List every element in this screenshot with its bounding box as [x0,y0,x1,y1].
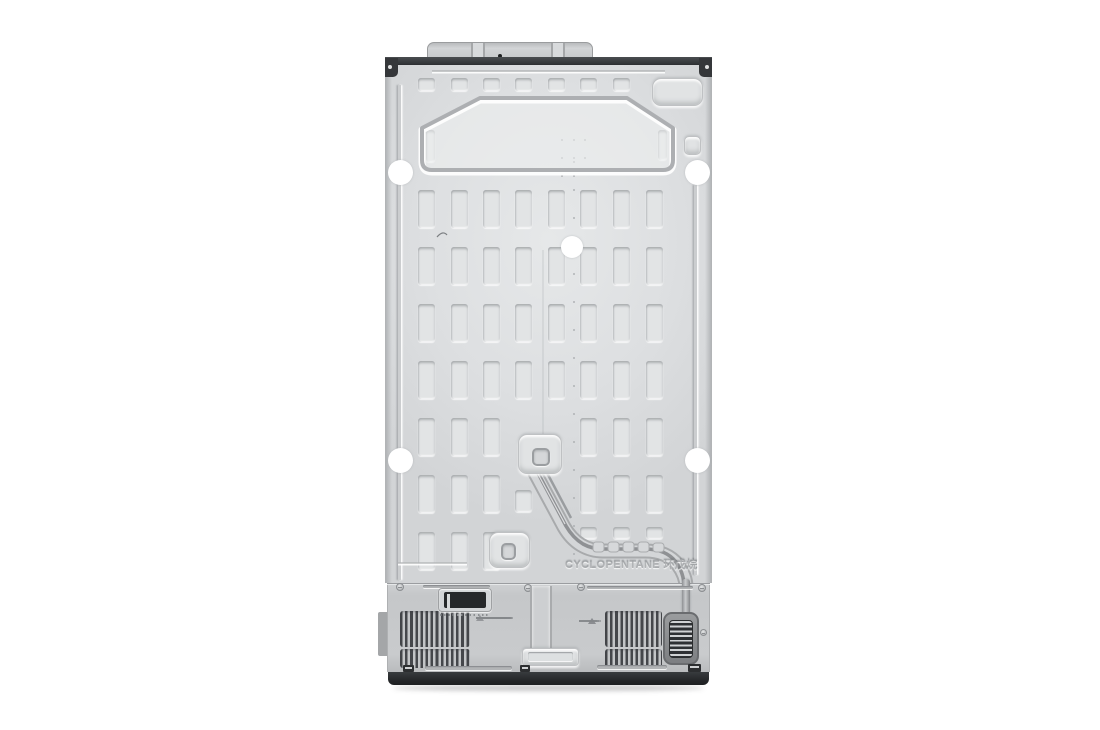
top-left-corner-bracket [385,58,398,77]
refrigerator-back: CYCLOPENTANE 环戊烷 [385,35,712,695]
cover-screw [396,583,404,591]
fine-print-line [476,617,501,619]
mount-hole [388,160,413,185]
base-strip [388,672,709,685]
right-warning-label [579,618,605,646]
cover-top-slot-right [587,586,693,589]
right-vent-grille-upper [605,611,662,647]
bracket-screw-dot [388,65,392,69]
foot-plate-slot [528,652,573,661]
ground-screw [577,583,585,591]
bottom-slot-left [425,666,512,670]
base-clip [520,665,530,672]
mount-hole [685,448,710,473]
fan-outlet-louvers [669,620,693,658]
base-clip [688,664,701,672]
cyclopentane-emboss-text: CYCLOPENTANE 环戊烷 [565,556,697,572]
base-clip [403,665,414,672]
top-right-corner-bracket [699,58,712,77]
photo-canvas: CYCLOPENTANE 环戊烷 [0,0,1100,730]
cover-seam [387,583,710,584]
mount-hole [685,160,710,185]
barcode-bar [447,594,450,610]
barcode-window [444,592,486,608]
bracket-screw-dot [705,65,709,69]
fine-print-line [579,620,597,622]
bottom-slot-right [597,665,667,669]
mount-hole [388,448,413,473]
left-warning-label [476,615,516,665]
cover-screw [698,584,706,592]
cover-screw [700,629,707,636]
left-vent-grille-upper [400,611,470,647]
mount-hole [561,236,583,258]
center-conduit-channel [530,586,552,650]
